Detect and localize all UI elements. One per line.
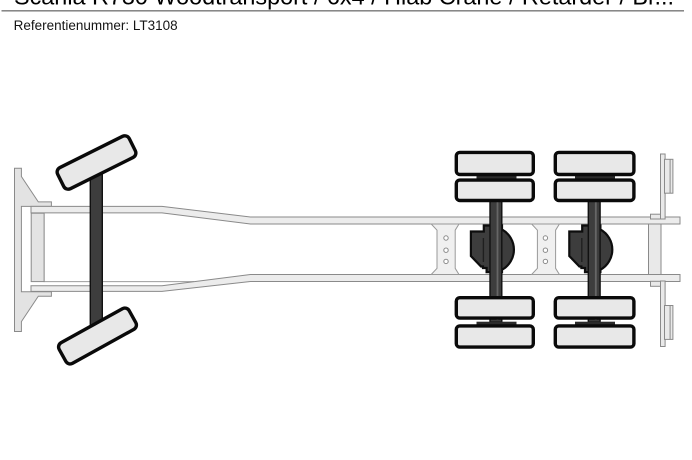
svg-text:Scania R730 Woodtransport / 6x: Scania R730 Woodtransport / 6x4 / Hiab C… <box>14 0 674 9</box>
svg-text:Referentienummer: LT3108: Referentienummer: LT3108 <box>14 18 178 33</box>
